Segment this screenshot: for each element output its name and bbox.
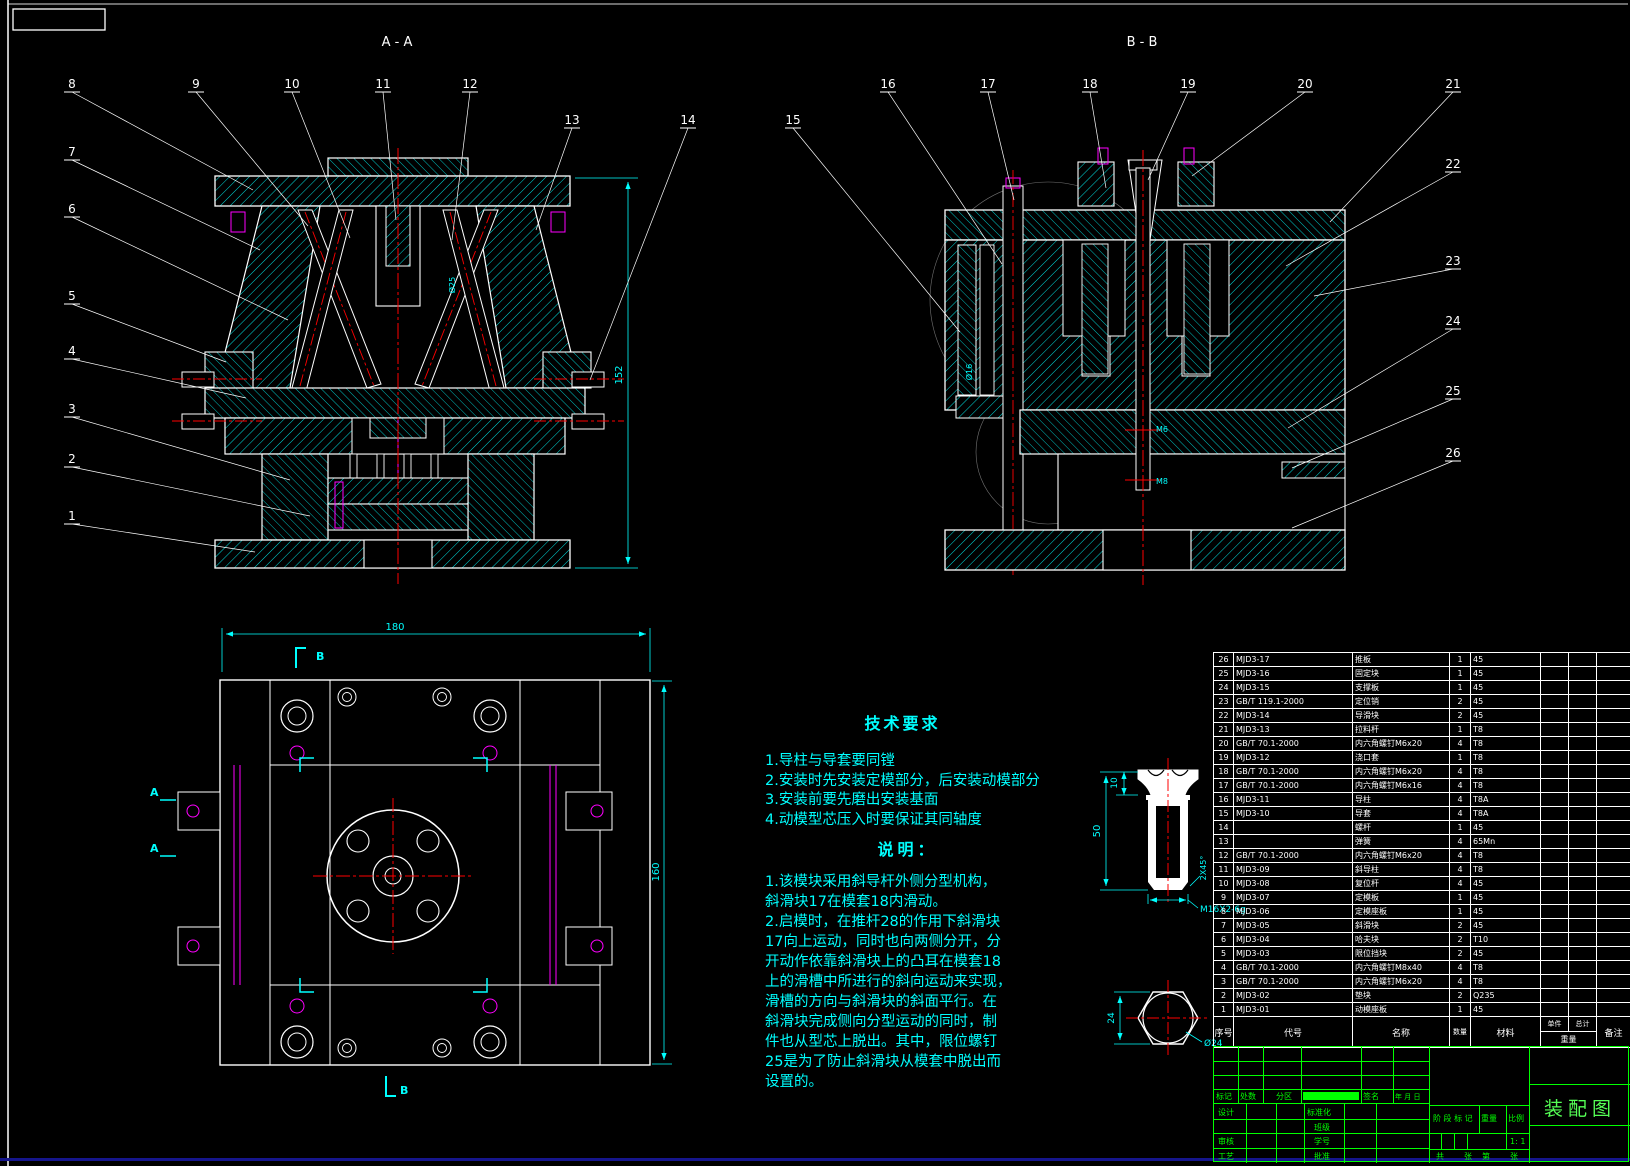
- callout-number: 23: [1445, 254, 1460, 268]
- cell: [1569, 849, 1597, 863]
- callout-20: 20: [1192, 77, 1313, 176]
- tb-zone: 分区: [1276, 1091, 1292, 1102]
- tb-class: 班级: [1314, 1122, 1330, 1133]
- cell: 65Mn: [1471, 835, 1541, 849]
- table-row: 10MJD3-08复位杆445: [1214, 877, 1630, 891]
- cell: [1597, 723, 1630, 737]
- cell: T8: [1471, 765, 1541, 779]
- cell: [1541, 1003, 1569, 1017]
- header-name: 名称: [1353, 1017, 1450, 1047]
- table-row: 3GB/T 70.1-2000内六角螺钉M6x204T8: [1214, 975, 1630, 989]
- cell: 2: [1214, 989, 1234, 1003]
- callout-number: 14: [680, 113, 695, 127]
- cell: GB/T 70.1-2000: [1234, 849, 1353, 863]
- cell: 内六角螺钉M6x20: [1353, 849, 1450, 863]
- header-qty: 数量: [1450, 1017, 1471, 1047]
- note-line: 上的滑槽中所进行的斜向运动来实现，: [765, 972, 1050, 992]
- cell: MJD3-17: [1234, 653, 1353, 667]
- header-unit: 单件: [1541, 1017, 1569, 1031]
- cell: [1569, 793, 1597, 807]
- cell: [1541, 877, 1569, 891]
- cell: MJD3-15: [1234, 681, 1353, 695]
- cell: [1597, 961, 1630, 975]
- plan-height-dimension: 160: [651, 681, 672, 1064]
- cell: [1597, 863, 1630, 877]
- cell: MJD3-16: [1234, 667, 1353, 681]
- cell: [1597, 919, 1630, 933]
- svg-text:10: 10: [1110, 777, 1120, 789]
- cell: [1569, 681, 1597, 695]
- cell: [1569, 933, 1597, 947]
- cell: 4: [1450, 961, 1471, 975]
- cell: MJD3-01: [1234, 1003, 1353, 1017]
- cell: [1597, 737, 1630, 751]
- cell: 导套: [1353, 807, 1450, 821]
- header-weight-group: 单件总计 重量: [1541, 1017, 1597, 1047]
- cell: 限位挡块: [1353, 947, 1450, 961]
- parts-table: 26MJD3-17推板14525MJD3-16固定块14524MJD3-15支撑…: [1213, 652, 1630, 1017]
- table-row: 22MJD3-14导滑块245: [1214, 709, 1630, 723]
- callout-number: 8: [68, 77, 76, 91]
- svg-text:A: A: [150, 842, 159, 855]
- callout-number: 26: [1445, 446, 1460, 460]
- note-line: 滑槽的方向与斜滑块的斜面平行。在: [765, 992, 1050, 1012]
- cell: MJD3-14: [1234, 709, 1353, 723]
- cell: 24: [1214, 681, 1234, 695]
- cell: 定模座板: [1353, 905, 1450, 919]
- explanation-notes: 说明： 1.该模块采用斜导杆外侧分型机构，斜滑块17在模套18内滑动。2.启模时…: [765, 836, 1050, 1092]
- header-material: 材料: [1471, 1017, 1541, 1047]
- tech-requirement-item: 4.动模型芯压入时要保证其同轴度: [765, 811, 1040, 831]
- tb-date: 年 月 日: [1395, 1092, 1420, 1102]
- cell: [1597, 751, 1630, 765]
- tb-check: 审核: [1218, 1136, 1234, 1147]
- cell: [1541, 765, 1569, 779]
- cell: 20: [1214, 737, 1234, 751]
- cell: GB/T 70.1-2000: [1234, 765, 1353, 779]
- cell: 7: [1214, 919, 1234, 933]
- tb-scale: 比例: [1508, 1113, 1524, 1124]
- svg-text:24: 24: [1107, 1012, 1117, 1024]
- cell: 45: [1471, 947, 1541, 961]
- cell: [1569, 723, 1597, 737]
- table-row: 1MJD3-01动模座板145: [1214, 1003, 1630, 1017]
- cell: 45: [1471, 891, 1541, 905]
- cell: 斜滑块: [1353, 919, 1450, 933]
- plan-width-value: 180: [385, 622, 404, 633]
- cell: 4: [1450, 849, 1471, 863]
- table-row: 26MJD3-17推板145: [1214, 653, 1630, 667]
- cell: 45: [1471, 905, 1541, 919]
- section-mark-b-bottom: B: [386, 1076, 408, 1097]
- cell: 1: [1450, 723, 1471, 737]
- cell: [1569, 695, 1597, 709]
- cell: [1597, 975, 1630, 989]
- cell: MJD3-13: [1234, 723, 1353, 737]
- cell: 14: [1214, 821, 1234, 835]
- cell: MJD3-09: [1234, 863, 1353, 877]
- cell: [1569, 989, 1597, 1003]
- table-row: 14螺杆145: [1214, 821, 1630, 835]
- cell: 支撑板: [1353, 681, 1450, 695]
- cell: [1569, 751, 1597, 765]
- cell: 8: [1214, 905, 1234, 919]
- cell: [1541, 709, 1569, 723]
- tb-approve: 批准: [1314, 1151, 1330, 1162]
- cell: 45: [1471, 919, 1541, 933]
- cell: MJD3-10: [1234, 807, 1353, 821]
- table-row: 12GB/T 70.1-2000内六角螺钉M6x204T8: [1214, 849, 1630, 863]
- tb-sign: 签名: [1363, 1091, 1379, 1102]
- cell: 6: [1214, 933, 1234, 947]
- cell: [1541, 947, 1569, 961]
- svg-text:2X45°: 2X45°: [1199, 856, 1208, 881]
- cell: 4: [1450, 863, 1471, 877]
- cell: [1597, 695, 1630, 709]
- title-block: 标记 处数 分区 签名 年 月 日 设计 标准化 班级 审核 学号 工艺 批准 …: [1213, 1046, 1629, 1162]
- svg-text:B: B: [400, 1084, 408, 1097]
- callout-number: 16: [880, 77, 895, 91]
- tech-requirements-list: 1.导柱与导套要同镗2.安装时先安装定模部分，后安装动模部分3.安装前要先磨出安…: [765, 752, 1040, 830]
- cell: [1569, 765, 1597, 779]
- cell: [1597, 765, 1630, 779]
- plan-height-value: 160: [651, 862, 662, 881]
- cell: 内六角螺钉M6x20: [1353, 765, 1450, 779]
- cell: 3: [1214, 975, 1234, 989]
- cell: 13: [1214, 835, 1234, 849]
- cell: 4: [1214, 961, 1234, 975]
- cell: 45: [1471, 1003, 1541, 1017]
- cell: T8: [1471, 751, 1541, 765]
- cell: 9: [1214, 891, 1234, 905]
- bolt-chamfer-note: 2X45°: [1190, 856, 1208, 886]
- cell: MJD3-11: [1234, 793, 1353, 807]
- table-row: 21MJD3-13拉料杆1T8: [1214, 723, 1630, 737]
- cell: 18: [1214, 765, 1234, 779]
- tb-sheets-total: 共: [1436, 1151, 1444, 1162]
- cell: T8: [1471, 849, 1541, 863]
- cell: 1: [1450, 905, 1471, 919]
- cell: 定模板: [1353, 891, 1450, 905]
- cell: [1597, 933, 1630, 947]
- table-row: 2MJD3-02垫块2Q235: [1214, 989, 1630, 1003]
- cad-drawing-sheet: A - A: [0, 0, 1630, 1166]
- cell: [1597, 947, 1630, 961]
- callout-number: 3: [68, 402, 76, 416]
- cell: [1541, 905, 1569, 919]
- callout-number: 15: [785, 113, 800, 127]
- callout-14: 14: [590, 113, 696, 380]
- tb-student: 学号: [1314, 1136, 1330, 1147]
- cell: GB/T 70.1-2000: [1234, 779, 1353, 793]
- notes-list: 1.该模块采用斜导杆外侧分型机构，斜滑块17在模套18内滑动。2.启模时，在推杆…: [765, 872, 1050, 1092]
- note-line: 设置的。: [765, 1072, 1050, 1092]
- table-row: 18GB/T 70.1-2000内六角螺钉M6x204T8: [1214, 765, 1630, 779]
- callout-21: 21: [1330, 77, 1461, 222]
- cell: [1541, 723, 1569, 737]
- cell: [1569, 807, 1597, 821]
- cell: MJD3-02: [1234, 989, 1353, 1003]
- cell: [1541, 849, 1569, 863]
- cell: 哈夫块: [1353, 933, 1450, 947]
- note-line: 17向上运动，同时也向两侧分开，分: [765, 932, 1050, 952]
- tech-requirement-item: 3.安装前要先磨出安装基面: [765, 791, 1040, 811]
- cell: [1541, 821, 1569, 835]
- callout-number: 1: [68, 509, 76, 523]
- cell: 2: [1450, 933, 1471, 947]
- cell: 23: [1214, 695, 1234, 709]
- cell: 4: [1450, 765, 1471, 779]
- cell: [1569, 653, 1597, 667]
- callout-8: 8: [64, 77, 253, 190]
- note-line: 1.该模块采用斜导杆外侧分型机构，: [765, 872, 1050, 892]
- cell: 1: [1450, 667, 1471, 681]
- table-row: 23GB/T 119.1-2000定位销245: [1214, 695, 1630, 709]
- cell: [1541, 695, 1569, 709]
- cell: GB/T 70.1-2000: [1234, 975, 1353, 989]
- callout-16: 16: [880, 77, 1002, 264]
- cell: 22: [1214, 709, 1234, 723]
- cell: 螺杆: [1353, 821, 1450, 835]
- cell: [1541, 667, 1569, 681]
- cell: [1569, 863, 1597, 877]
- cell: 1: [1450, 681, 1471, 695]
- cell: 19: [1214, 751, 1234, 765]
- cell: 11: [1214, 863, 1234, 877]
- cell: 内六角螺钉M6x20: [1353, 975, 1450, 989]
- cell: [1569, 877, 1597, 891]
- callout-5: 5: [64, 289, 226, 362]
- header-code: 代号: [1234, 1017, 1353, 1047]
- callout-number: 20: [1297, 77, 1312, 91]
- cell: 定位销: [1353, 695, 1450, 709]
- cell: 4: [1450, 793, 1471, 807]
- cell: MJD3-04: [1234, 933, 1353, 947]
- cell: 拉料杆: [1353, 723, 1450, 737]
- cell: 2: [1450, 947, 1471, 961]
- view-section-bb: B - B Ø16: [930, 35, 1345, 585]
- cell: [1569, 709, 1597, 723]
- cell: 1: [1450, 751, 1471, 765]
- header-remark: 备注: [1597, 1017, 1630, 1047]
- cell: [1597, 989, 1630, 1003]
- cell: T8: [1471, 723, 1541, 737]
- tb-scale-value: 1: 1: [1510, 1137, 1525, 1146]
- cell: MJD3-06: [1234, 905, 1353, 919]
- cell: [1569, 947, 1597, 961]
- callout-number: 22: [1445, 157, 1460, 171]
- callout-17: 17: [980, 77, 1014, 200]
- cell: T8: [1471, 779, 1541, 793]
- cell: [1541, 793, 1569, 807]
- callout-number: 19: [1180, 77, 1195, 91]
- tb-process: 工艺: [1218, 1151, 1234, 1162]
- cell: 内六角螺钉M6x20: [1353, 737, 1450, 751]
- cell: [1541, 933, 1569, 947]
- cell: 1: [1450, 821, 1471, 835]
- cell: [1597, 877, 1630, 891]
- section-aa-label: A - A: [382, 35, 413, 50]
- cell: [1569, 821, 1597, 835]
- cell: [1597, 891, 1630, 905]
- cell: [1541, 737, 1569, 751]
- callout-number: 2: [68, 452, 76, 466]
- tech-requirements-title: 技术要求: [765, 710, 1040, 734]
- cell: T8: [1471, 737, 1541, 751]
- cell: 45: [1471, 681, 1541, 695]
- cell: 26: [1214, 653, 1234, 667]
- table-row: 9MJD3-07定模板145: [1214, 891, 1630, 905]
- bolt-length-dimension: 50: [1092, 772, 1148, 890]
- callout-number: 25: [1445, 384, 1460, 398]
- view-plan: B B A A 180 160: [150, 622, 672, 1097]
- bb-bore-note: Ø16: [964, 364, 974, 380]
- table-row: 7MJD3-05斜滑块245: [1214, 919, 1630, 933]
- table-row: 20GB/T 70.1-2000内六角螺钉M6x204T8: [1214, 737, 1630, 751]
- cell: 45: [1471, 653, 1541, 667]
- cell: 4: [1450, 779, 1471, 793]
- cell: [1541, 807, 1569, 821]
- cell: [1541, 891, 1569, 905]
- tb-sheets-no: 第: [1482, 1151, 1490, 1162]
- cell: [1541, 751, 1569, 765]
- callout-number: 13: [564, 113, 579, 127]
- note-line: 2.启模时，在推杆28的作用下斜滑块: [765, 912, 1050, 932]
- cell: 25: [1214, 667, 1234, 681]
- cell: [1597, 653, 1630, 667]
- technical-requirements: 技术要求 1.导柱与导套要同镗2.安装时先安装定模部分，后安装动模部分3.安装前…: [765, 710, 1040, 830]
- cell: 45: [1471, 877, 1541, 891]
- cell: [1541, 961, 1569, 975]
- cell: [1234, 835, 1353, 849]
- cell: 45: [1471, 821, 1541, 835]
- cell: 4: [1450, 975, 1471, 989]
- cell: 12: [1214, 849, 1234, 863]
- cell: 1: [1450, 1003, 1471, 1017]
- cell: [1541, 681, 1569, 695]
- cell: [1541, 863, 1569, 877]
- cell: 2: [1450, 709, 1471, 723]
- cell: [1569, 919, 1597, 933]
- cell: 垫块: [1353, 989, 1450, 1003]
- header-total: 总计: [1569, 1017, 1596, 1031]
- cell: 45: [1471, 695, 1541, 709]
- cell: [1541, 779, 1569, 793]
- cell: MJD3-07: [1234, 891, 1353, 905]
- bb-m6-note: M6: [1156, 425, 1168, 434]
- cell: MJD3-12: [1234, 751, 1353, 765]
- table-row: 5MJD3-03限位挡块245: [1214, 947, 1630, 961]
- cell: [1597, 849, 1630, 863]
- tb-design: 设计: [1218, 1107, 1234, 1118]
- table-row: 11MJD3-09斜导柱4T8: [1214, 863, 1630, 877]
- cell: GB/T 70.1-2000: [1234, 737, 1353, 751]
- section-mark-a-lower: A: [150, 842, 176, 856]
- cell: MJD3-03: [1234, 947, 1353, 961]
- cell: 2: [1450, 989, 1471, 1003]
- section-bb-label: B - B: [1127, 35, 1158, 50]
- cell: [1597, 681, 1630, 695]
- cell: 弹簧: [1353, 835, 1450, 849]
- cell: 21: [1214, 723, 1234, 737]
- tb-count: 处数: [1240, 1091, 1256, 1102]
- cell: [1569, 1003, 1597, 1017]
- aa-bore-note: Ø25: [447, 277, 457, 293]
- cell: [1569, 737, 1597, 751]
- cell: MJD3-05: [1234, 919, 1353, 933]
- callout-number: 6: [68, 202, 76, 216]
- callout-number: 11: [375, 77, 390, 91]
- callout-number: 9: [192, 77, 200, 91]
- table-row: 16MJD3-11导柱4T8A: [1214, 793, 1630, 807]
- header-no: 序号: [1214, 1017, 1234, 1047]
- cell: T8: [1471, 975, 1541, 989]
- table-row: 19MJD3-12浇口套1T8: [1214, 751, 1630, 765]
- cell: [1597, 667, 1630, 681]
- svg-text:50: 50: [1092, 825, 1103, 838]
- cell: T8A: [1471, 793, 1541, 807]
- cell: [1597, 807, 1630, 821]
- cell: GB/T 70.1-2000: [1234, 961, 1353, 975]
- tb-sheets-z1: 张: [1464, 1151, 1472, 1162]
- cell: MJD3-08: [1234, 877, 1353, 891]
- cell: [1569, 779, 1597, 793]
- callout-number: 12: [462, 77, 477, 91]
- cell: 导柱: [1353, 793, 1450, 807]
- callout-15: 15: [785, 113, 960, 332]
- cell: 1: [1450, 891, 1471, 905]
- section-mark-b-top: B: [296, 648, 324, 668]
- note-line: 25是为了防止斜滑块从模套中脱出而: [765, 1052, 1050, 1072]
- note-line: 件也从型芯上脱出。其中，限位螺钉: [765, 1032, 1050, 1052]
- cell: 45: [1471, 667, 1541, 681]
- cell: 45: [1471, 709, 1541, 723]
- cell: 2: [1450, 695, 1471, 709]
- cell: Q235: [1471, 989, 1541, 1003]
- callout-number: 18: [1082, 77, 1097, 91]
- table-row: 6MJD3-04哈夫块2T10: [1214, 933, 1630, 947]
- cell: [1597, 779, 1630, 793]
- callout-number: 5: [68, 289, 76, 303]
- cell: [1569, 961, 1597, 975]
- drawing-title: 装配图: [1544, 1094, 1616, 1121]
- cell: [1597, 793, 1630, 807]
- cell: 内六角螺钉M8x40: [1353, 961, 1450, 975]
- cell: [1569, 905, 1597, 919]
- tb-sheets-z2: 张: [1510, 1151, 1518, 1162]
- cell: [1597, 821, 1630, 835]
- cell: 浇口套: [1353, 751, 1450, 765]
- table-row: 8MJD3-06定模座板145: [1214, 905, 1630, 919]
- cell: 导滑块: [1353, 709, 1450, 723]
- callout-number: 21: [1445, 77, 1460, 91]
- tb-mark: 标记: [1216, 1091, 1232, 1102]
- cell: T8: [1471, 961, 1541, 975]
- cell: [1569, 835, 1597, 849]
- note-line: 斜滑块完成侧向分型运动的同时，制: [765, 1012, 1050, 1032]
- cell: 4: [1450, 737, 1471, 751]
- cell: [1541, 975, 1569, 989]
- parts-table-header: 序号 代号 名称 数量 材料 单件总计 重量 备注: [1213, 1016, 1630, 1048]
- cell: 5: [1214, 947, 1234, 961]
- callout-number: 24: [1445, 314, 1460, 328]
- svg-text:A: A: [150, 786, 159, 799]
- tech-requirement-item: 1.导柱与导套要同镗: [765, 752, 1040, 772]
- cell: 动模座板: [1353, 1003, 1450, 1017]
- cell: 复位杆: [1353, 877, 1450, 891]
- tb-standard: 标准化: [1307, 1107, 1331, 1118]
- section-mark-a-upper: A: [150, 786, 176, 800]
